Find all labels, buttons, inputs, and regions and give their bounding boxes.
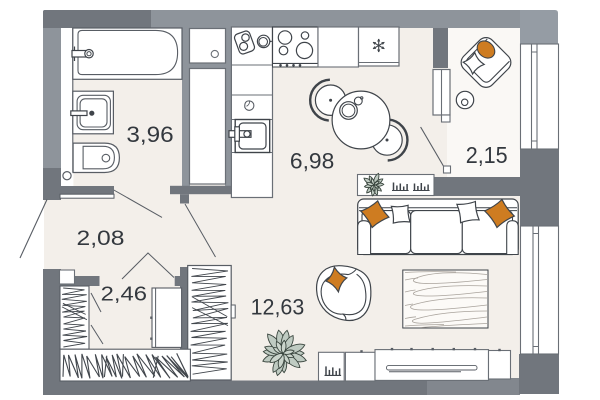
svg-text:2,15: 2,15 [466, 142, 508, 168]
svg-text:12,63: 12,63 [251, 294, 305, 319]
svg-text:2,46: 2,46 [101, 283, 147, 305]
svg-text:3,96: 3,96 [126, 122, 173, 147]
svg-text:6,98: 6,98 [290, 149, 334, 174]
svg-text:2,08: 2,08 [77, 226, 125, 250]
